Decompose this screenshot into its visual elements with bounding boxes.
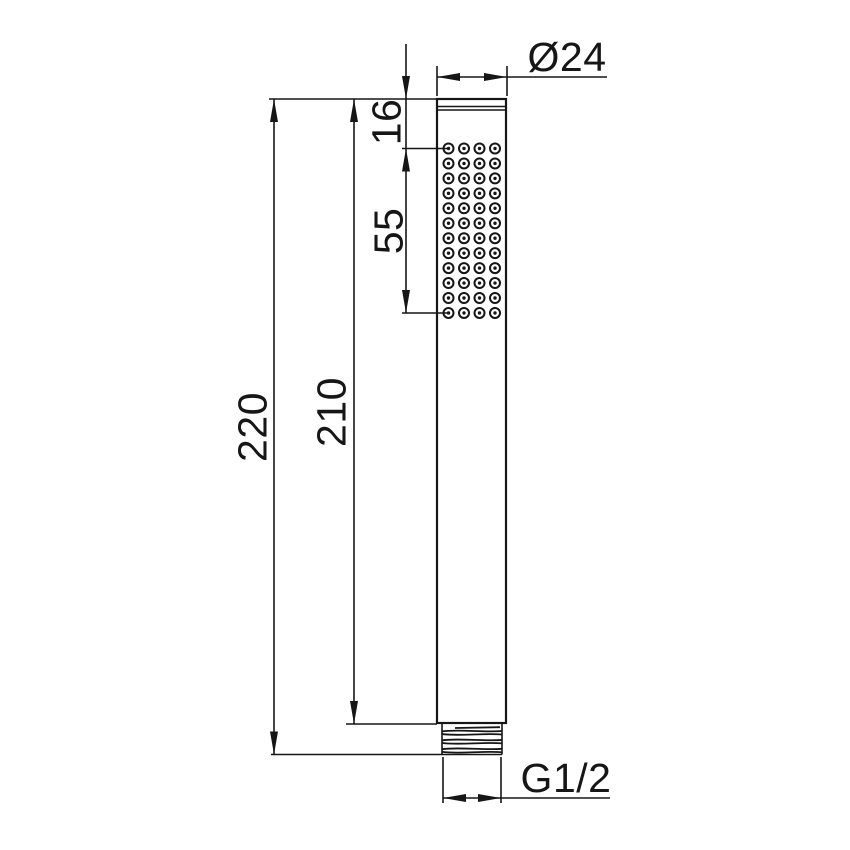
thread-ridge-line	[455, 727, 500, 728]
dim-arrow-up	[270, 99, 278, 122]
nozzle-dot-center	[493, 281, 496, 284]
thread-ridge-line	[442, 752, 503, 753]
dim-diameter-top: Ø24	[437, 34, 607, 96]
thread-ridges	[442, 727, 503, 752]
dim-body-length: 210	[308, 99, 437, 724]
nozzle-dot-center	[493, 192, 496, 195]
nozzle-dot-center	[493, 147, 496, 150]
thread-ridge-line	[442, 739, 503, 740]
nozzle-dot-center	[447, 162, 450, 165]
nozzle-dot-center	[462, 281, 465, 284]
thread-ridge-line	[442, 731, 503, 732]
nozzle-dot-center	[493, 251, 496, 254]
thread-ridge-line	[442, 743, 503, 744]
dim-label-spray-zone: 55	[365, 208, 411, 255]
dim-arrow-up	[402, 149, 410, 172]
nozzle-dot-center	[462, 162, 465, 165]
nozzle-dot-center	[478, 237, 481, 240]
nozzle-dot-center	[462, 207, 465, 210]
dim-arrow-down	[270, 732, 278, 755]
nozzle-dot-center	[478, 311, 481, 314]
nozzle-dot-center	[447, 207, 450, 210]
nozzle-dot-center	[478, 192, 481, 195]
nozzle-dot-center	[447, 177, 450, 180]
nozzle-dot-center	[447, 237, 450, 240]
nozzle-dot-center	[462, 251, 465, 254]
nozzle-dot-center	[447, 266, 450, 269]
nozzle-dot-center	[478, 162, 481, 165]
dim-thread: G1/2	[443, 755, 611, 803]
dim-arrow-down	[402, 76, 410, 99]
nozzle-dot-center	[493, 296, 496, 299]
nozzle-dot-center	[462, 237, 465, 240]
thread-ridge-line	[442, 748, 503, 749]
nozzle-dot-center	[478, 296, 481, 299]
nozzle-dot-center	[493, 311, 496, 314]
dim-arrow-down	[402, 290, 410, 313]
nozzle-dot-center	[493, 207, 496, 210]
nozzle-dot-center	[493, 162, 496, 165]
dim-nozzle-zone: 16 55	[269, 44, 448, 313]
nozzle-dot-center	[478, 177, 481, 180]
handle-body	[437, 99, 506, 723]
handshower-technical-drawing: Ø24 16 55 210 220 G1	[0, 0, 850, 850]
drawing-canvas: Ø24 16 55 210 220 G1	[0, 0, 850, 850]
nozzle-dot-center	[478, 147, 481, 150]
nozzle-dot-center	[462, 177, 465, 180]
dim-label-head-offset: 16	[363, 99, 409, 146]
nozzle-dot-center	[462, 147, 465, 150]
dim-arrow-down	[350, 701, 358, 724]
dim-label-body-length: 210	[308, 377, 354, 447]
nozzle-dot-center	[462, 192, 465, 195]
nozzle-dot-center	[478, 266, 481, 269]
nozzle-dot-center	[478, 251, 481, 254]
dim-arrow-left	[437, 73, 460, 81]
thread-ridge-line	[442, 734, 503, 735]
nozzle-dot-center	[493, 266, 496, 269]
nozzle-dot-center	[447, 222, 450, 225]
thread-section	[442, 723, 503, 755]
nozzle-dot-center	[462, 222, 465, 225]
dim-label-diameter: Ø24	[528, 34, 607, 80]
nozzle-dot-center	[478, 281, 481, 284]
nozzle-dot-center	[462, 311, 465, 314]
nozzle-dot-center	[447, 192, 450, 195]
dim-label-thread: G1/2	[521, 755, 612, 801]
dim-arrow-right	[484, 73, 507, 81]
nozzle-dot-center	[478, 222, 481, 225]
nozzle-dot-center	[447, 296, 450, 299]
nozzle-dot-center	[493, 177, 496, 180]
nozzle-dot-center	[447, 281, 450, 284]
nozzle-dot-center	[478, 207, 481, 210]
nozzle-dot-center	[447, 251, 450, 254]
dim-arrow-left	[443, 794, 466, 802]
nozzle-dot-center	[462, 266, 465, 269]
nozzle-dot-center	[462, 296, 465, 299]
spray-nozzle-grid	[444, 144, 501, 318]
nozzle-dot-center	[493, 222, 496, 225]
dim-arrow-right	[478, 794, 501, 802]
dim-label-overall-length: 220	[229, 392, 275, 462]
nozzle-dot-center	[493, 237, 496, 240]
dim-arrow-up	[350, 99, 358, 122]
